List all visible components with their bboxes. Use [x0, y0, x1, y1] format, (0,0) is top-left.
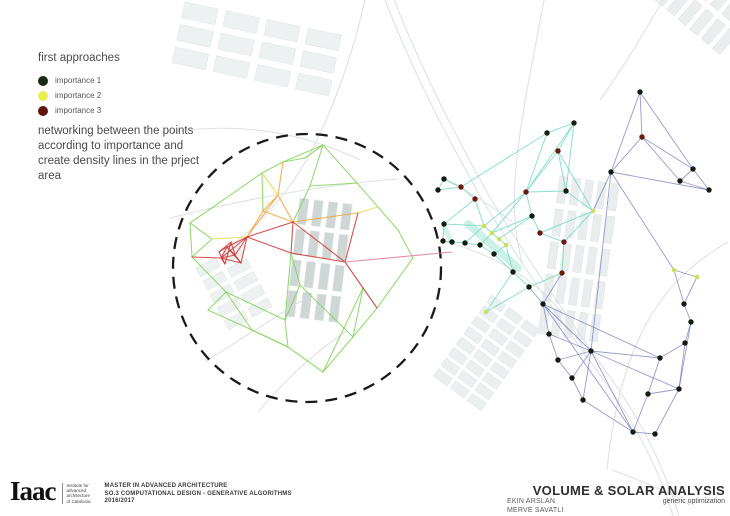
credits: EKIN ARSLAN MERVE SAVATLI	[507, 498, 564, 515]
program-line: SO.3 COMPUTATIONAL DESIGN - GENERATIVE A…	[105, 491, 292, 499]
map-buildings	[172, 0, 730, 411]
legend: first approaches importance 1 importance…	[38, 52, 120, 118]
importance-1-dot-icon	[38, 76, 48, 86]
institute-name: Institute for advanced architecture of C…	[62, 483, 91, 504]
legend-item-importance-2: importance 2	[38, 88, 120, 103]
presentation-slide: first approaches importance 1 importance…	[0, 0, 730, 516]
institute-line: architecture	[67, 493, 91, 498]
credit-name: EKIN ARSLAN	[507, 498, 564, 507]
legend-item-label: importance 1	[55, 76, 101, 85]
iaac-logo: Iaac	[10, 480, 56, 502]
description-text: networking between the points according …	[38, 124, 216, 184]
footer: Iaac Institute for advanced architecture…	[10, 480, 292, 506]
credit-name: MERVE SAVATLI	[507, 507, 564, 516]
program-line: 2016/2017	[105, 498, 292, 506]
institute-line: of Catalonia	[67, 499, 91, 504]
legend-item-importance-3: importance 3	[38, 103, 120, 118]
title-block: VOLUME & SOLAR ANALYSIS generic optimiza…	[505, 483, 725, 505]
map-roads	[170, 0, 728, 516]
legend-title: first approaches	[38, 52, 120, 64]
importance-2-dot-icon	[38, 91, 48, 101]
program-info: MASTER IN ADVANCED ARCHITECTURE SO.3 COM…	[105, 483, 292, 506]
page-title: VOLUME & SOLAR ANALYSIS	[505, 483, 725, 498]
program-line: MASTER IN ADVANCED ARCHITECTURE	[105, 483, 292, 491]
importance-3-dot-icon	[38, 106, 48, 116]
legend-item-label: importance 3	[55, 106, 101, 115]
legend-item-label: importance 2	[55, 91, 101, 100]
legend-item-importance-1: importance 1	[38, 73, 120, 88]
